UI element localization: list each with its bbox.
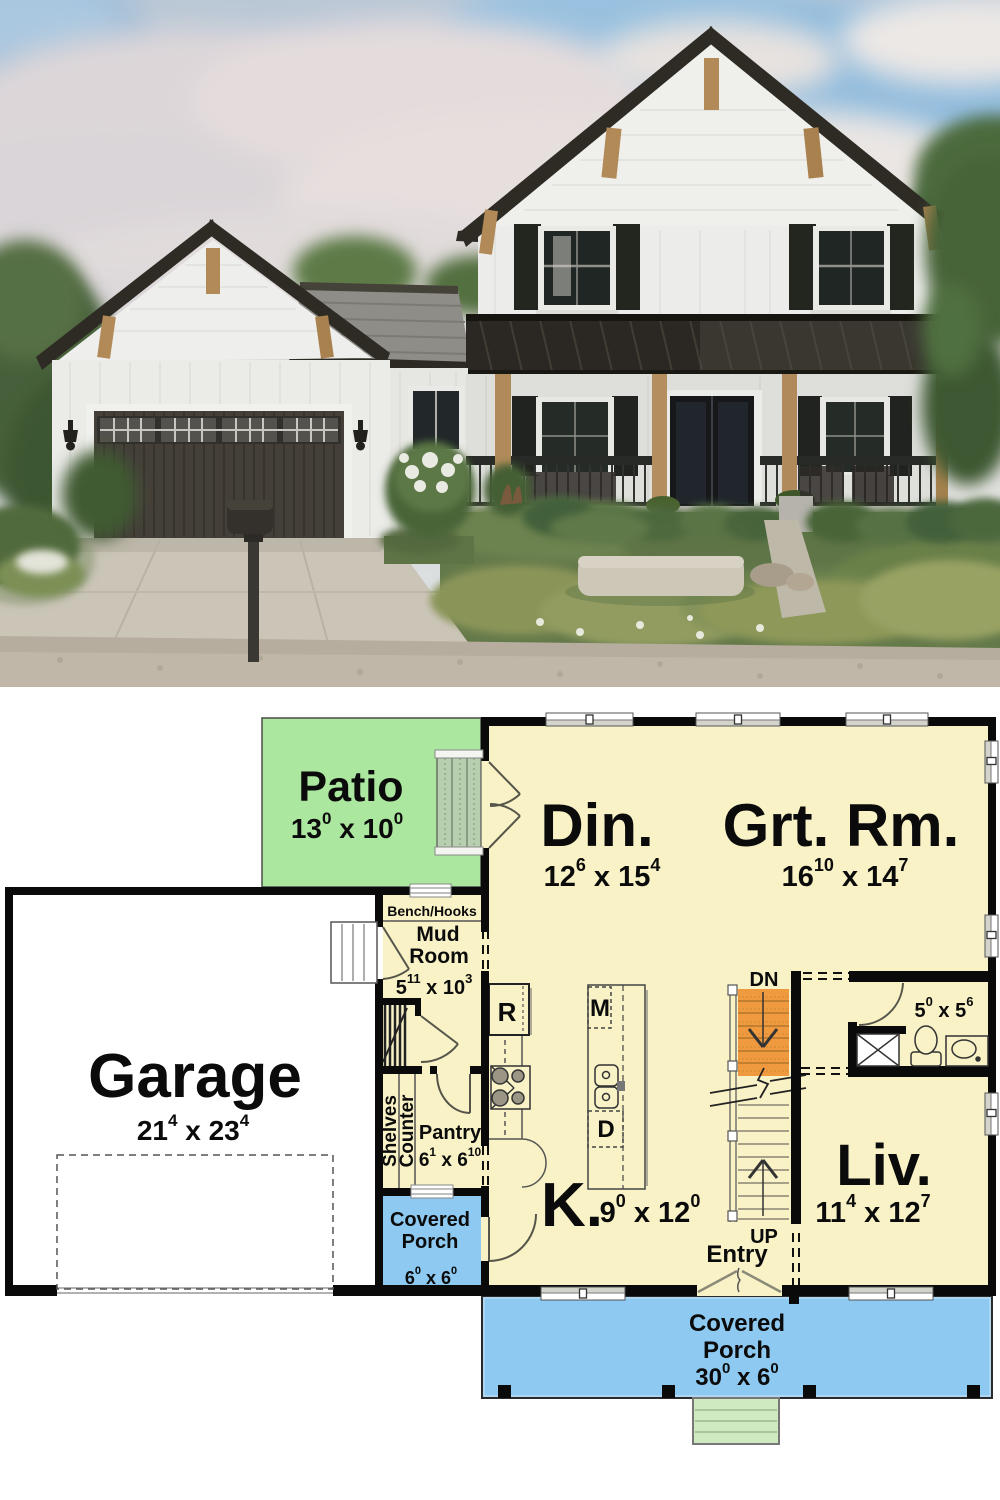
svg-text:K.: K. xyxy=(541,1171,603,1240)
svg-text:Mud: Mud xyxy=(416,923,459,946)
svg-text:130 x 100: 130 x 100 xyxy=(291,809,403,844)
svg-text:Counter: Counter xyxy=(397,1094,418,1167)
svg-text:Covered: Covered xyxy=(689,1310,785,1337)
svg-text:Room: Room xyxy=(409,945,469,968)
svg-text:60 x 60: 60 x 60 xyxy=(405,1265,457,1288)
svg-text:Entry: Entry xyxy=(706,1241,768,1268)
svg-text:214 x 234: 214 x 234 xyxy=(137,1111,250,1146)
svg-text:Liv.: Liv. xyxy=(836,1133,932,1198)
svg-text:300 x 60: 300 x 60 xyxy=(695,1360,778,1391)
svg-text:90 x 120: 90 x 120 xyxy=(600,1191,701,1229)
svg-text:114 x 127: 114 x 127 xyxy=(815,1191,930,1229)
svg-text:Bench/Hooks: Bench/Hooks xyxy=(387,903,477,919)
svg-text:Patio: Patio xyxy=(298,763,403,811)
svg-text:DN: DN xyxy=(750,969,779,991)
svg-text:Din.: Din. xyxy=(540,792,653,859)
svg-text:R: R xyxy=(498,997,517,1027)
svg-text:M: M xyxy=(590,995,610,1022)
svg-text:Porch: Porch xyxy=(703,1337,771,1364)
svg-text:Garage: Garage xyxy=(88,1042,302,1111)
svg-text:Porch: Porch xyxy=(402,1231,459,1253)
svg-text:Pantry: Pantry xyxy=(419,1122,482,1144)
svg-text:1610 x 147: 1610 x 147 xyxy=(782,855,909,893)
svg-text:D: D xyxy=(597,1116,614,1143)
svg-text:Covered: Covered xyxy=(390,1209,470,1231)
svg-text:126 x 154: 126 x 154 xyxy=(544,855,661,893)
svg-text:Grt. Rm.: Grt. Rm. xyxy=(723,792,960,859)
